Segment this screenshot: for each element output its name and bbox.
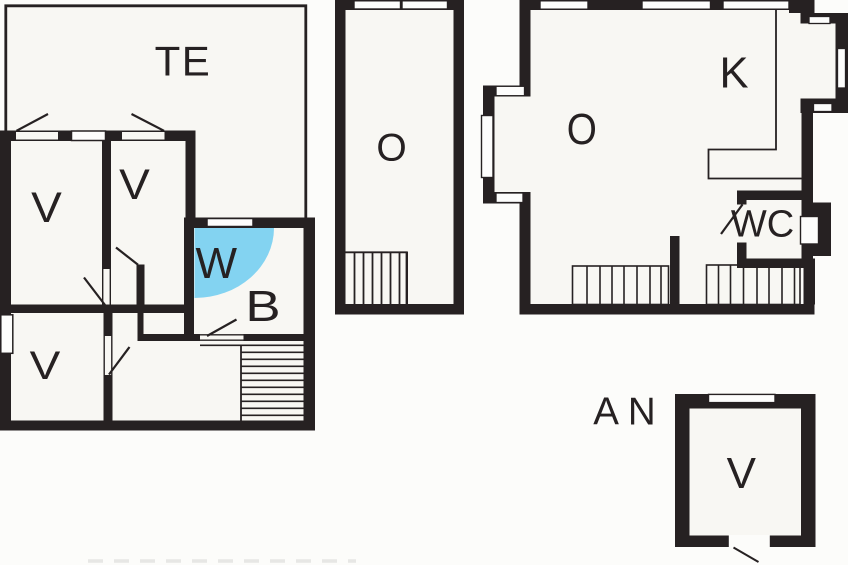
svg-text:B: B: [245, 282, 280, 331]
svg-text:V: V: [727, 449, 757, 498]
svg-text:V: V: [119, 161, 150, 208]
svg-text:O: O: [567, 104, 597, 154]
svg-text:W: W: [196, 239, 238, 288]
svg-text:TE: TE: [155, 38, 212, 85]
svg-text:AN: AN: [593, 390, 664, 433]
svg-text:V: V: [30, 344, 61, 389]
svg-text:K: K: [719, 50, 748, 98]
svg-text:V: V: [31, 184, 62, 231]
svg-text:WC: WC: [731, 204, 794, 246]
svg-text:O: O: [376, 127, 406, 170]
